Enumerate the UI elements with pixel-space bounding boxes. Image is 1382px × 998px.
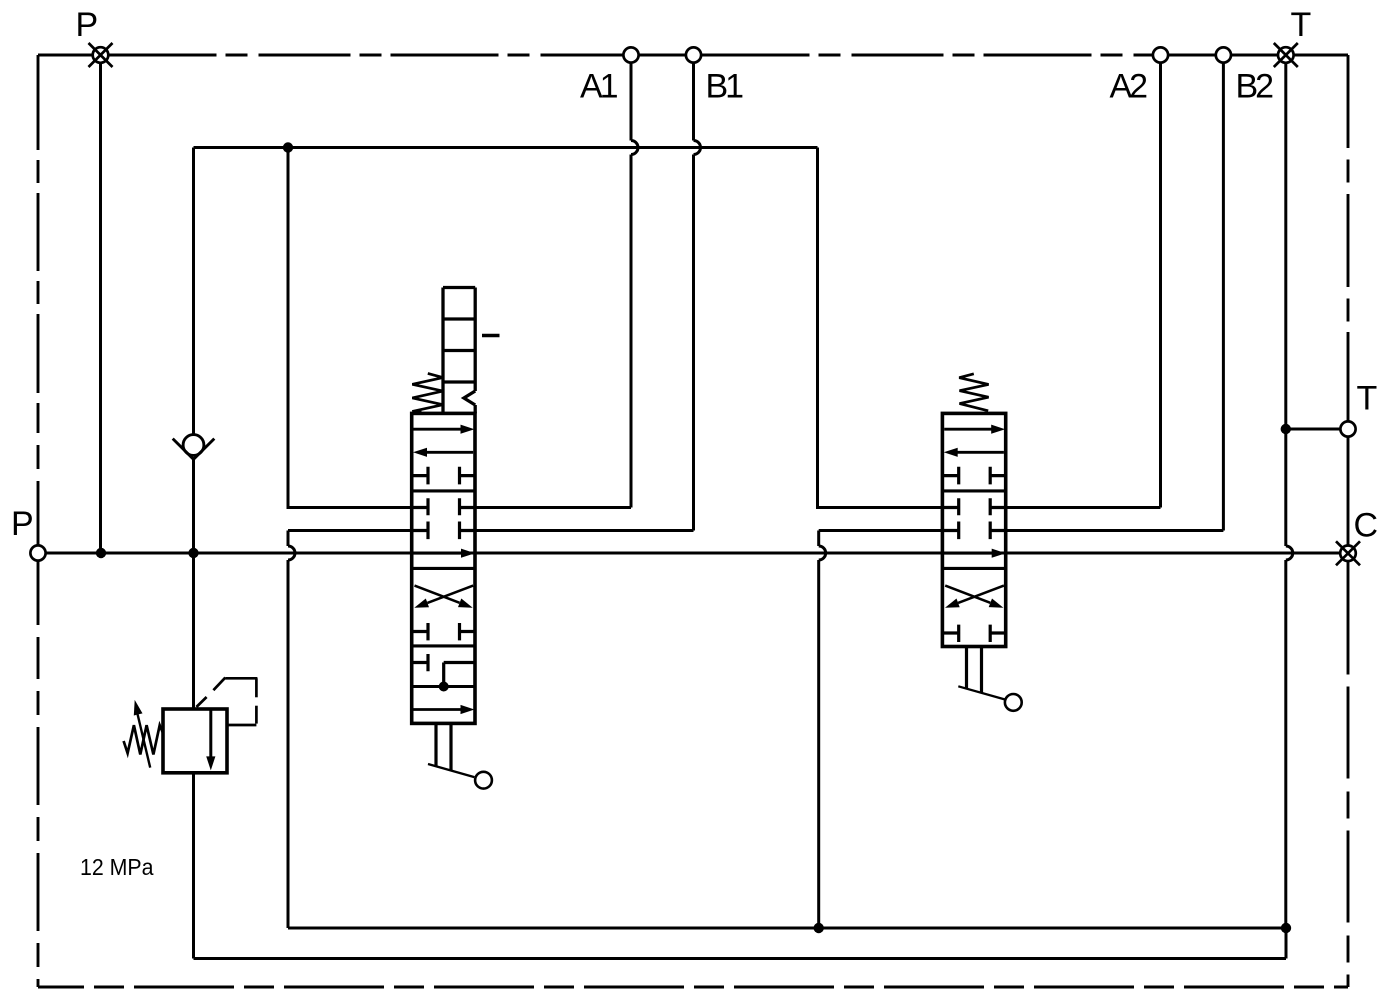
svg-text:A2: A2 (1110, 68, 1148, 106)
svg-text:P: P (76, 6, 99, 44)
svg-text:B2: B2 (1236, 68, 1274, 106)
svg-text:C: C (1354, 507, 1379, 545)
svg-text:A1: A1 (580, 68, 618, 106)
svg-text:B1: B1 (706, 68, 744, 106)
svg-text:T: T (1357, 380, 1378, 418)
svg-text:P: P (11, 505, 34, 543)
svg-text:12 MPa: 12 MPa (80, 854, 154, 880)
svg-text:T: T (1291, 6, 1312, 44)
